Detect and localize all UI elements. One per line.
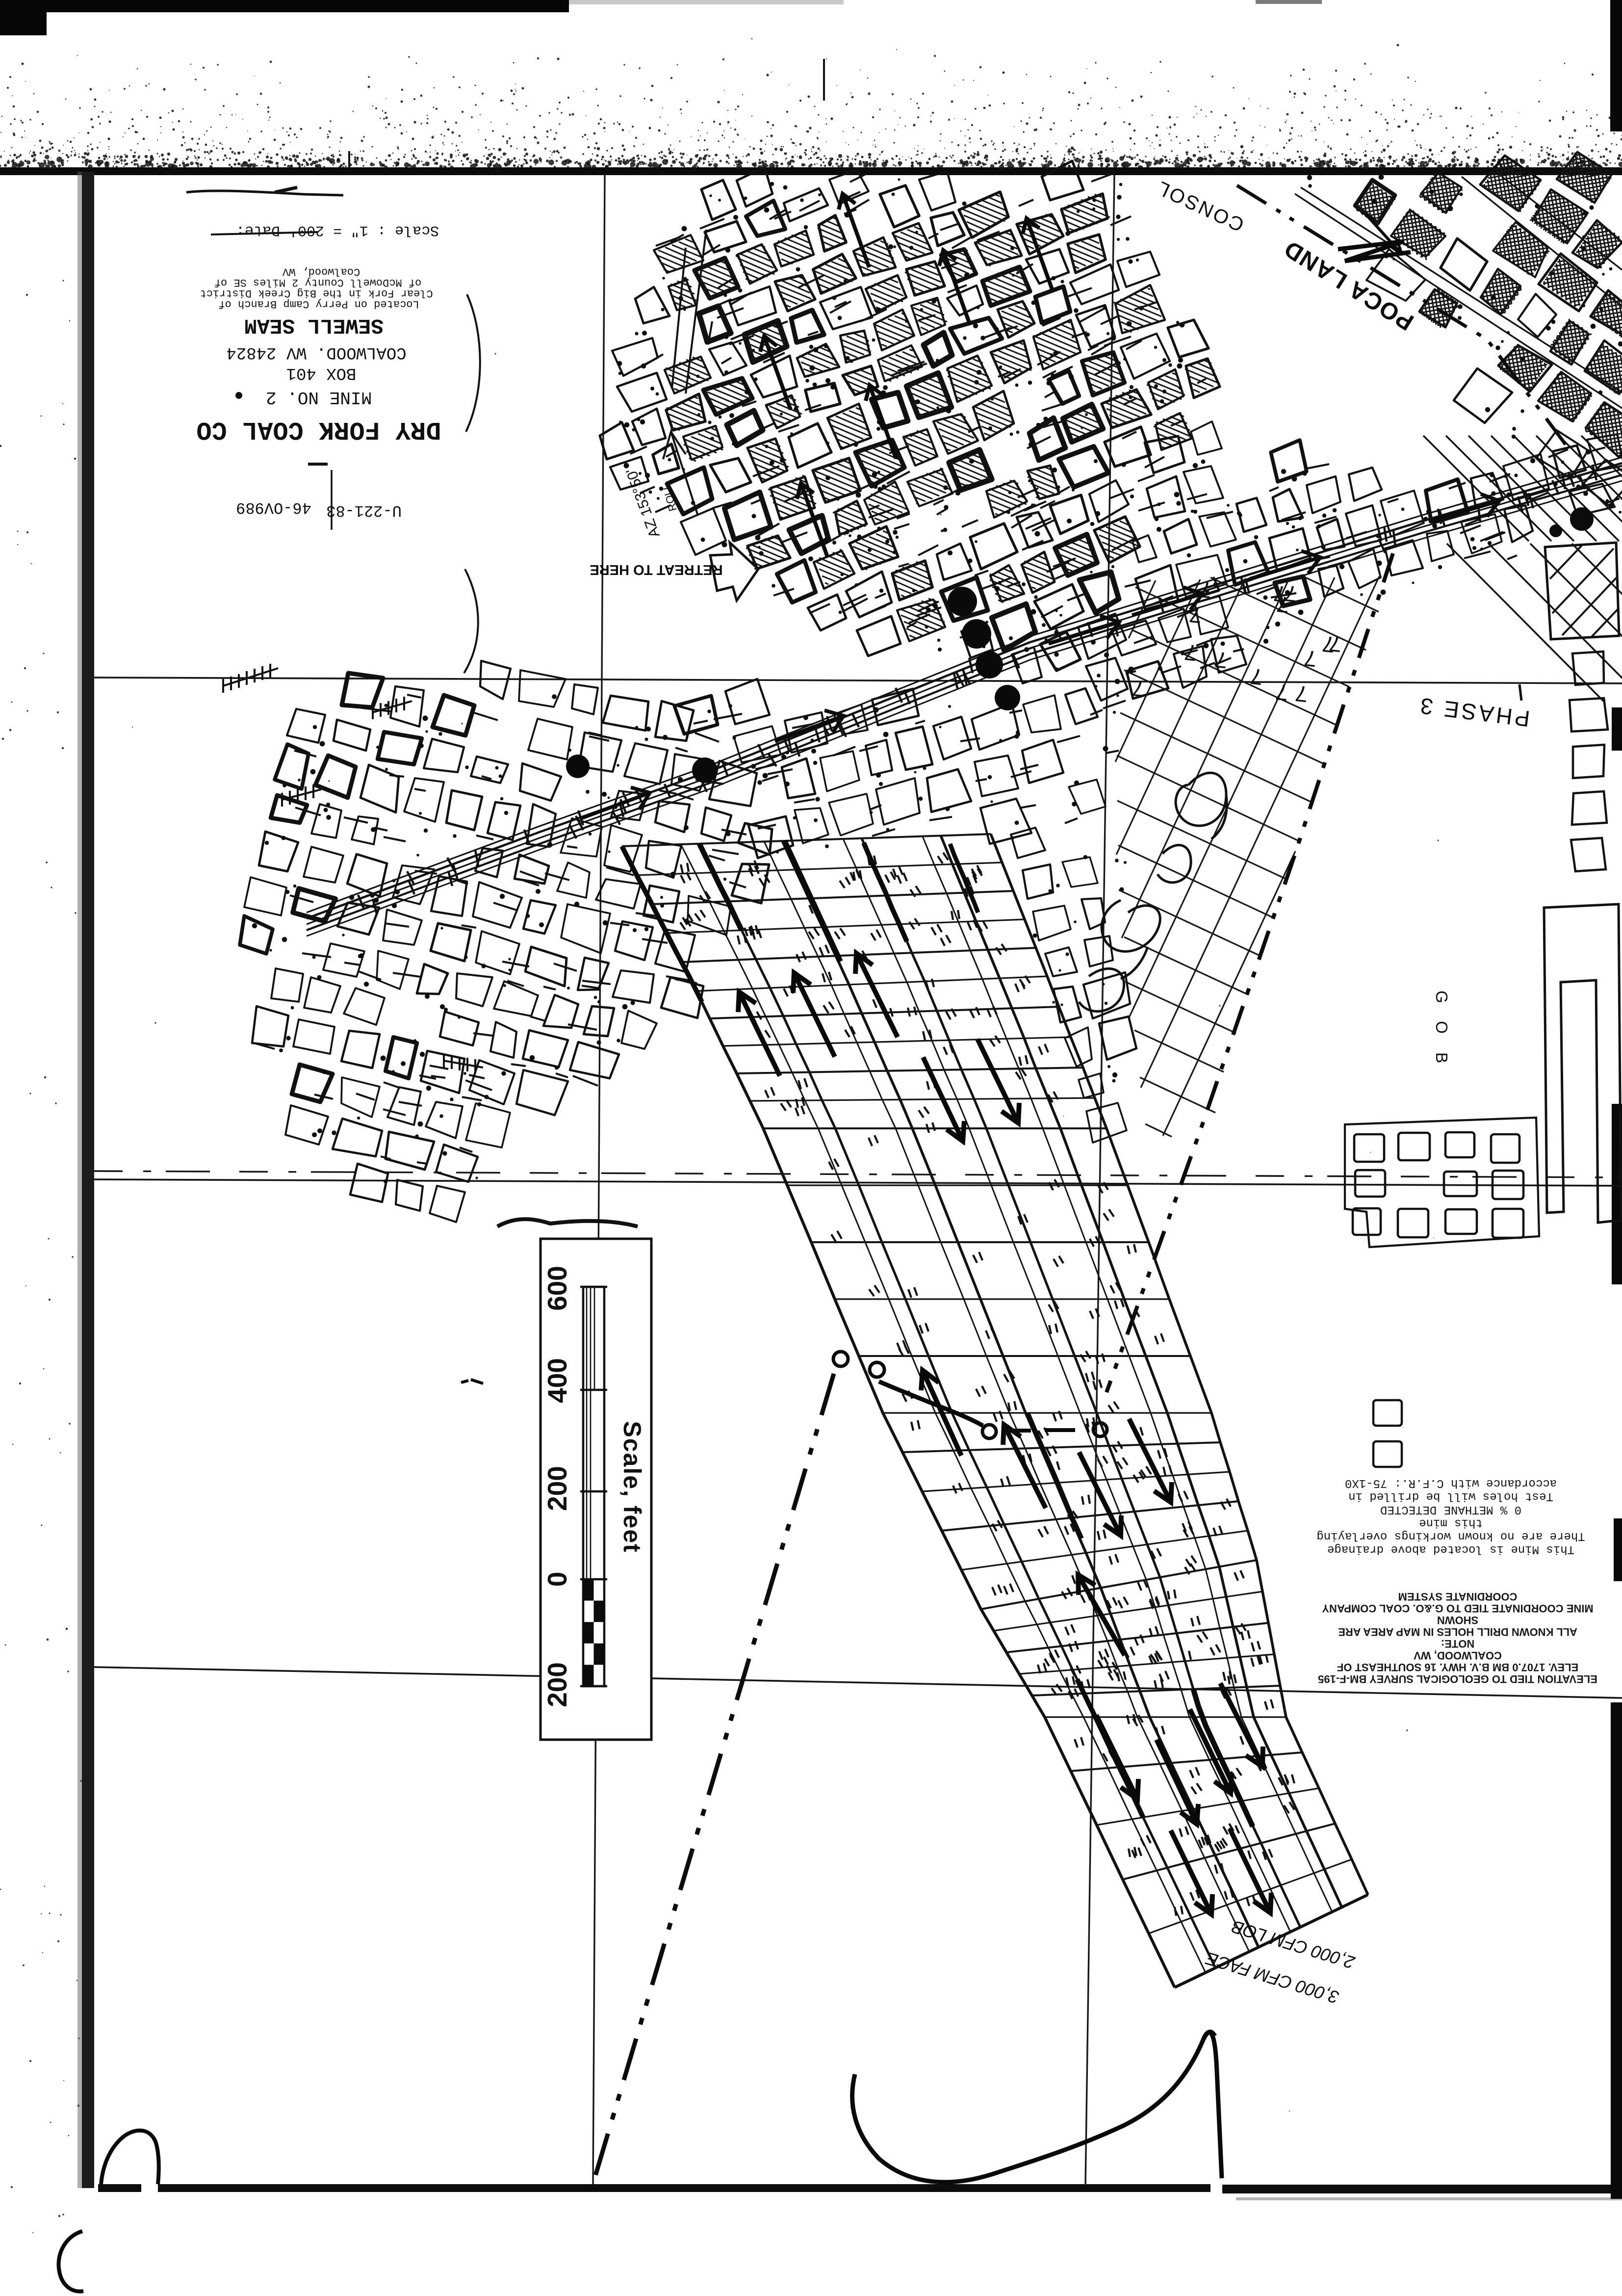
svg-text:7: 7 (1131, 675, 1146, 702)
svg-text:Scale : 1" = 200' Date:: Scale : 1" = 200' Date: (236, 222, 439, 238)
svg-text:7: 7 (1213, 647, 1229, 673)
svg-text:Located on Perry Camp Branch o: Located on Perry Camp Branch of (218, 298, 419, 310)
svg-text:0 % METHANE DETECTED: 0 % METHANE DETECTED (1380, 1503, 1521, 1516)
svg-text:7: 7 (1294, 680, 1309, 707)
svg-text:B: B (1433, 1052, 1451, 1063)
svg-text:7: 7 (1249, 663, 1264, 690)
svg-text:SHOWN: SHOWN (1437, 1614, 1478, 1626)
svg-text:MINE COORDINATE TIED TO G.&O.: MINE COORDINATE TIED TO G.&O. COAL COMPA… (1322, 1602, 1594, 1615)
svg-text:this mine: this mine (1419, 1516, 1483, 1529)
svg-text:Test holes will be drilled in: Test holes will be drilled in (1348, 1489, 1553, 1503)
svg-text:0: 0 (542, 1572, 572, 1587)
svg-text:ALL KNOWN DRILL HOLES IN MAP A: ALL KNOWN DRILL HOLES IN MAP AREA ARE (1338, 1626, 1577, 1638)
svg-text:MINE NO. 2: MINE NO. 2 (266, 387, 372, 407)
svg-text:This Mine is located above dra: This Mine is located above drainage (1327, 1542, 1574, 1556)
svg-text:NOTE:: NOTE: (1441, 1638, 1474, 1650)
svg-text:Scale, feet: Scale, feet (618, 1421, 646, 1553)
svg-text:accordance with C.F.R.: 75-1X0: accordance with C.F.R.: 75-1X0 (1345, 1476, 1557, 1489)
svg-text:600: 600 (542, 1266, 572, 1311)
svg-text:O: O (1433, 1021, 1451, 1034)
svg-text:COALWOOD, WV: COALWOOD, WV (1414, 1649, 1502, 1662)
svg-text:7: 7 (1303, 645, 1318, 672)
svg-text:Coalwood, WV: Coalwood, WV (282, 265, 360, 278)
svg-text:RETREAT TO HERE: RETREAT TO HERE (590, 562, 722, 577)
svg-text:U-221-83: U-221-83 (326, 501, 402, 520)
svg-text:SEWELL SEAM: SEWELL SEAM (244, 313, 384, 338)
svg-text:400: 400 (542, 1358, 572, 1403)
svg-text:DRY FORK COAL CO: DRY FORK COAL CO (196, 415, 441, 444)
svg-text:of McDowell County 2 Miles SE: of McDowell County 2 Miles SE of (214, 276, 421, 288)
svg-text:7: 7 (1283, 580, 1298, 607)
svg-text:200: 200 (542, 1466, 572, 1511)
svg-text:COORDINATE SYSTEM: COORDINATE SYSTEM (1398, 1591, 1518, 1603)
svg-text:7: 7 (1274, 679, 1289, 705)
svg-text:200: 200 (542, 1662, 572, 1707)
svg-text:46-OV989: 46-OV989 (236, 498, 311, 517)
svg-text:7: 7 (1183, 639, 1198, 666)
svg-text:ELEVATION TIED TO GEOLOGICAL S: ELEVATION TIED TO GEOLOGICAL SURVEY BM-F… (1318, 1673, 1597, 1685)
svg-text:ELEV. 1707.0 BM B.V. HWY. 16 S: ELEV. 1707.0 BM B.V. HWY. 16 SOUTHEAST O… (1337, 1661, 1578, 1673)
svg-text:BOX 401: BOX 401 (286, 364, 357, 382)
svg-text:G: G (1433, 991, 1451, 1003)
svg-text:There are no known workings ov: There are no known workings overlaying (1316, 1529, 1585, 1542)
svg-text:7: 7 (1328, 630, 1343, 657)
svg-text:COALWOOD. WV 24824: COALWOOD. WV 24824 (226, 343, 406, 362)
svg-text:Clear Fork in the Big Creek Di: Clear Fork in the Big Creek District (200, 287, 433, 299)
